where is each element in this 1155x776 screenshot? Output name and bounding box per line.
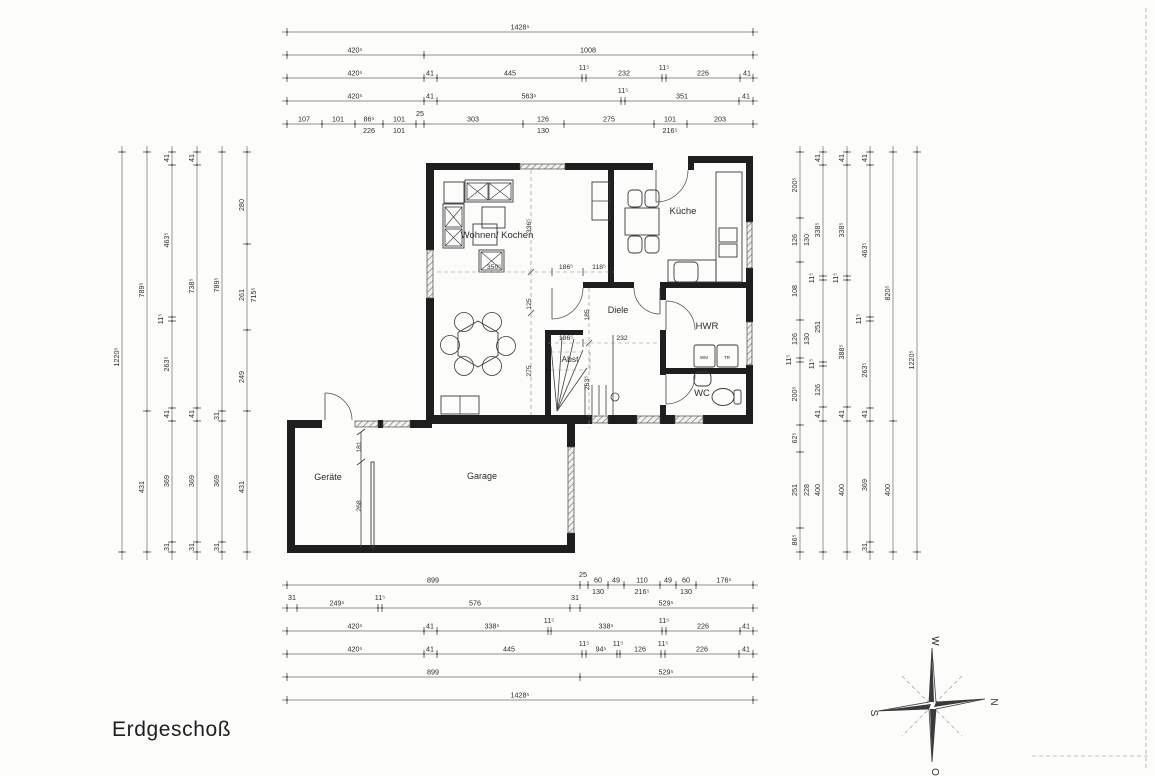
- dim-tick-dot: [377, 607, 379, 609]
- dim-label: 338⁵: [485, 622, 500, 631]
- dim-tick-dot: [892, 420, 894, 422]
- drawing-title: Erdgeschoß: [112, 718, 231, 742]
- dim-tick-dot: [846, 275, 848, 277]
- dim-label: 226: [697, 622, 709, 631]
- dim-label: 431: [137, 481, 146, 493]
- dim-tick-dot: [739, 77, 741, 79]
- door-swing: [666, 375, 695, 404]
- dim-label: 126: [634, 645, 646, 654]
- dim-tick-dot: [799, 151, 801, 153]
- dim-label: 369: [162, 475, 171, 487]
- dim-label: 226: [696, 645, 708, 654]
- dim-tick-dot: [752, 584, 754, 586]
- wall: [660, 415, 675, 424]
- dim-label: 11⁵: [659, 63, 669, 72]
- dim-label: 11⁵: [579, 63, 589, 72]
- inner-dim-label: 186⁵: [559, 335, 573, 342]
- dim-label: 420⁵: [348, 622, 363, 631]
- dim-tick-dot: [579, 676, 581, 678]
- dim-tick-dot: [738, 100, 740, 102]
- dim-tick-dot: [869, 316, 871, 318]
- dim-tick-dot: [752, 123, 754, 125]
- dim-label: 41: [162, 410, 171, 418]
- dim-tick-dot: [146, 551, 148, 553]
- dim-tick-dot: [286, 699, 288, 701]
- dim-tick-dot: [752, 630, 754, 632]
- dim-tick-dot: [665, 77, 667, 79]
- dim-tick-dot: [563, 123, 565, 125]
- dim-tick-dot: [146, 410, 148, 412]
- wc-cistern: [734, 390, 741, 404]
- dim-tick-dot: [846, 420, 848, 422]
- dim-tick-dot: [846, 151, 848, 153]
- dim-tick-dot: [822, 279, 824, 281]
- wall: [660, 330, 666, 375]
- dim-label: 899: [427, 668, 439, 677]
- wall: [567, 420, 575, 447]
- dim-tick-dot: [892, 551, 894, 553]
- dim-label: 1220⁵: [907, 351, 916, 370]
- inner-dim-label: 350⁵: [487, 264, 501, 271]
- dim-tick-dot: [579, 607, 581, 609]
- plan-line: [551, 346, 557, 411]
- dim-tick-dot: [436, 100, 438, 102]
- dim-label: 1428⁵: [511, 691, 530, 700]
- dim-sublabel: 226: [363, 126, 375, 135]
- dim-tick-dot: [869, 320, 871, 322]
- dim-label: 576: [469, 599, 481, 608]
- dim-tick-dot: [221, 151, 223, 153]
- wall: [567, 533, 575, 553]
- dim-label: 41: [162, 154, 171, 162]
- room-label-wohnen-kochen: Wohnen/ Kochen: [461, 230, 534, 241]
- wall: [426, 298, 434, 415]
- wall: [660, 405, 666, 415]
- wc-sink: [694, 372, 711, 386]
- wall: [426, 163, 434, 250]
- dim-label: 263⁵: [162, 357, 171, 372]
- inner-dim-label: 118⁵: [592, 264, 606, 271]
- dim-tick-dot: [587, 584, 589, 586]
- dim-tick-dot: [752, 676, 754, 678]
- dim-label: 463⁵: [860, 243, 869, 258]
- dim-label: 60: [682, 576, 690, 585]
- wall: [660, 288, 666, 300]
- dim-tick-dot: [869, 541, 871, 543]
- dim-label: 31: [288, 593, 296, 602]
- chair: [628, 236, 642, 253]
- dim-label: 11⁵: [807, 273, 816, 283]
- dim-label: 420⁵: [348, 92, 363, 101]
- dim-label: 41: [187, 154, 196, 162]
- dim-label: 126: [790, 333, 799, 345]
- dim-label: 338⁵: [599, 622, 614, 631]
- window: [592, 416, 608, 423]
- dim-label: 11⁵: [613, 639, 623, 648]
- dim-label: 11⁵: [784, 355, 793, 365]
- dim-label: 303: [467, 115, 479, 124]
- dim-tick-dot: [171, 420, 173, 422]
- window: [383, 421, 410, 427]
- dim-tick-dot: [799, 357, 801, 359]
- dim-tick-dot: [171, 151, 173, 153]
- dim-label: 41: [742, 622, 750, 631]
- dim-label: 11⁵: [831, 273, 840, 283]
- window: [747, 222, 752, 268]
- window: [427, 250, 433, 298]
- dim-label: 11⁵: [156, 314, 165, 324]
- dim-tick-dot: [846, 551, 848, 553]
- dim-tick-dot: [436, 630, 438, 632]
- dim-tick-dot: [752, 100, 754, 102]
- compass-south-label: S: [868, 710, 879, 717]
- dim-label: 31: [212, 543, 221, 551]
- door-swing: [552, 288, 583, 319]
- dim-tick-dot: [661, 630, 663, 632]
- dim-tick-dot: [171, 541, 173, 543]
- window: [520, 164, 565, 169]
- dim-label: 338⁵: [837, 223, 846, 238]
- inner-dim-label: 263⁵: [584, 376, 591, 390]
- dim-tick-dot: [547, 630, 549, 632]
- wall: [565, 163, 653, 170]
- dim-tick-dot: [286, 100, 288, 102]
- dim-label: 31: [162, 543, 171, 551]
- dim-tick-dot: [659, 584, 661, 586]
- dim-label: 11⁵: [579, 639, 589, 648]
- furniture: [716, 172, 742, 282]
- wall: [410, 420, 432, 428]
- dim-tick-dot: [752, 77, 754, 79]
- dim-label: 263⁵: [860, 363, 869, 378]
- furniture: [719, 244, 737, 257]
- dim-label: 420⁵: [348, 645, 363, 654]
- dim-label: 94⁵: [596, 645, 607, 654]
- toilet: [712, 389, 734, 406]
- dim-tick-dot: [286, 676, 288, 678]
- door-swing: [666, 301, 695, 330]
- dim-tick-dot: [321, 123, 323, 125]
- dim-tick-dot: [738, 653, 740, 655]
- dim-sublabel: 130: [802, 234, 811, 246]
- dim-tick-dot: [623, 584, 625, 586]
- dim-tick-dot: [436, 77, 438, 79]
- dim-tick-dot: [822, 406, 824, 408]
- dim-label: 251: [813, 321, 822, 333]
- dim-tick-dot: [171, 164, 173, 166]
- dim-tick-dot: [686, 123, 688, 125]
- wall: [378, 420, 383, 428]
- dim-tick-dot: [664, 653, 666, 655]
- chair: [628, 190, 642, 207]
- dim-tick-dot: [916, 551, 918, 553]
- room-label-wc: WC: [694, 388, 710, 399]
- dim-tick-dot: [423, 653, 425, 655]
- chair: [645, 236, 659, 253]
- dim-label: 232: [618, 69, 630, 78]
- dim-label: 11⁵: [659, 616, 669, 625]
- dim-label: 11⁵: [854, 314, 863, 324]
- compass-east-label: O: [929, 768, 940, 776]
- chair: [645, 190, 659, 207]
- dim-label: 820⁵: [883, 286, 892, 301]
- wall: [688, 156, 694, 170]
- dim-tick-dot: [171, 320, 173, 322]
- dim-tick-dot: [799, 424, 801, 426]
- dim-tick-dot: [423, 77, 425, 79]
- dim-label: 41: [837, 154, 846, 162]
- dim-sublabel: 130: [537, 126, 549, 135]
- wall: [432, 163, 520, 170]
- dim-label: 41: [813, 154, 822, 162]
- dim-tick-dot: [171, 316, 173, 318]
- dim-label: 351: [676, 92, 688, 101]
- dim-label: 400: [883, 484, 892, 496]
- dim-tick-dot: [695, 584, 697, 586]
- dim-label: 400: [837, 484, 846, 496]
- dim-label: 420⁵: [348, 46, 363, 55]
- dim-tick-dot: [246, 551, 248, 553]
- dim-tick-dot: [799, 527, 801, 529]
- dim-tick-dot: [660, 653, 662, 655]
- window: [355, 421, 378, 427]
- dim-label: 49: [612, 576, 620, 585]
- dim-label: 529⁵: [659, 668, 674, 677]
- room-label-geraete: Geräte: [314, 472, 342, 482]
- dim-tick-dot: [616, 653, 618, 655]
- room-label-diele: Diele: [608, 305, 629, 315]
- inner-dim-label: 125: [526, 298, 533, 310]
- dim-label: 41: [426, 92, 434, 101]
- dim-label: 251: [790, 484, 799, 496]
- dim-tick-dot: [121, 551, 123, 553]
- dim-sublabel: 216⁵: [635, 587, 650, 596]
- dim-label: 369: [212, 475, 221, 487]
- dim-tick-dot: [799, 217, 801, 219]
- dim-label: 86⁵: [364, 115, 375, 124]
- dim-label: 41: [426, 69, 434, 78]
- dim-label: 369: [860, 479, 869, 491]
- dim-label: 261: [237, 289, 246, 301]
- dim-label: 563⁵: [522, 92, 537, 101]
- dim-tick-dot: [246, 329, 248, 331]
- dim-label: 41: [742, 645, 750, 654]
- dim-label: 1428⁵: [511, 23, 530, 32]
- furniture: [719, 228, 737, 242]
- dim-tick-dot: [423, 54, 425, 56]
- dim-tick-dot: [296, 607, 298, 609]
- door-swing: [634, 288, 660, 314]
- dim-tick-dot: [196, 407, 198, 409]
- dim-label: 445: [504, 69, 516, 78]
- dim-label: 126: [813, 384, 822, 396]
- dim-tick-dot: [221, 410, 223, 412]
- dim-label: 107: [298, 115, 310, 124]
- dim-tick-dot: [799, 261, 801, 263]
- compass-west-label: W: [929, 636, 940, 646]
- dim-tick-dot: [286, 630, 288, 632]
- dim-label: 529⁵: [659, 599, 674, 608]
- dim-label: 25: [579, 570, 587, 579]
- dim-tick-dot: [423, 630, 425, 632]
- dim-label: 101: [393, 115, 405, 124]
- dim-tick-dot: [799, 451, 801, 453]
- dim-label: 249: [237, 371, 246, 383]
- dim-label: 369: [187, 475, 196, 487]
- inner-dim-label: 232: [616, 335, 628, 342]
- dim-tick-dot: [286, 77, 288, 79]
- dim-tick-dot: [146, 151, 148, 153]
- dim-tick-dot: [892, 151, 894, 153]
- dim-label: 126: [537, 115, 549, 124]
- wall: [746, 268, 753, 322]
- dim-tick-dot: [286, 607, 288, 609]
- dim-tick-dot: [822, 420, 824, 422]
- dim-label: 41: [860, 410, 869, 418]
- dim-label: 31: [212, 412, 221, 420]
- dining-table: [458, 321, 498, 367]
- dim-label: 41: [187, 410, 196, 418]
- wall: [660, 282, 753, 288]
- dim-tick-dot: [171, 551, 173, 553]
- room-label-garage: Garage: [467, 471, 497, 481]
- dim-label: 101: [332, 115, 344, 124]
- dim-label: 445: [503, 645, 515, 654]
- dim-label: 41: [860, 154, 869, 162]
- dining-chair: [441, 336, 460, 355]
- dim-label: 1008: [580, 46, 596, 55]
- dim-label: 280: [237, 199, 246, 211]
- dim-tick-dot: [221, 551, 223, 553]
- dim-tick-dot: [423, 100, 425, 102]
- dim-label: 11⁵: [658, 639, 668, 648]
- dim-tick-dot: [171, 407, 173, 409]
- dim-tick-dot: [246, 243, 248, 245]
- furniture: [444, 182, 464, 203]
- floor-plan-drawing: 1428⁵420⁵1008420⁵4144511⁵23211⁵22641420⁵…: [0, 0, 1155, 776]
- compass-north-label: N: [988, 698, 999, 705]
- dim-tick-dot: [286, 54, 288, 56]
- dim-tick-dot: [752, 31, 754, 33]
- dim-tick-dot: [846, 279, 848, 281]
- dim-tick-dot: [196, 164, 198, 166]
- dim-tick-dot: [799, 551, 801, 553]
- dim-label: 108: [790, 285, 799, 297]
- dim-tick-dot: [661, 77, 663, 79]
- dim-tick-dot: [739, 630, 741, 632]
- dim-tick-dot: [286, 31, 288, 33]
- wall: [608, 170, 614, 282]
- dim-tick-dot: [246, 410, 248, 412]
- dim-tick-dot: [581, 77, 583, 79]
- dim-tick-dot: [581, 653, 583, 655]
- dim-tick-dot: [653, 123, 655, 125]
- room-label-abst: Abst: [561, 354, 579, 364]
- dim-tick-dot: [675, 584, 677, 586]
- dim-tick-dot: [196, 420, 198, 422]
- wall: [583, 282, 634, 288]
- dim-tick-dot: [822, 164, 824, 166]
- dim-label: 249⁵: [330, 599, 345, 608]
- dim-label: 11⁵: [807, 359, 816, 369]
- dim-tick-dot: [522, 123, 524, 125]
- dim-label: 226: [697, 69, 709, 78]
- inner-dim-label: 185: [584, 309, 591, 321]
- dim-label: 41: [742, 92, 750, 101]
- dim-label: 126: [790, 234, 799, 246]
- dim-tick-dot: [354, 123, 356, 125]
- furniture: [625, 208, 659, 235]
- room-label-wm: WM: [700, 355, 708, 360]
- dim-tick-dot: [916, 151, 918, 153]
- dim-label: 86⁵: [790, 534, 799, 545]
- dim-tick-dot: [607, 584, 609, 586]
- dim-label: 275: [603, 115, 615, 124]
- furniture: [482, 207, 505, 228]
- room-label-kueche: Küche: [670, 206, 697, 217]
- plan-line: [557, 368, 587, 411]
- dim-tick-dot: [381, 607, 383, 609]
- dim-tick-dot: [196, 551, 198, 553]
- dim-label: 101: [664, 115, 676, 124]
- dim-sublabel: 130: [802, 333, 811, 345]
- dim-label: 463⁵: [162, 233, 171, 248]
- dim-tick-dot: [585, 77, 587, 79]
- dim-tick-dot: [196, 151, 198, 153]
- dim-tick-dot: [579, 584, 581, 586]
- dim-tick-dot: [846, 164, 848, 166]
- dim-label: 200⁵: [790, 387, 799, 402]
- dining-chair: [497, 337, 516, 356]
- dim-tick-dot: [799, 361, 801, 363]
- dim-label: 41: [813, 410, 822, 418]
- room-label-hwr: HWR: [696, 321, 719, 332]
- dim-tick-dot: [799, 319, 801, 321]
- dim-label: 431: [237, 481, 246, 493]
- dim-sublabel: 228: [802, 484, 811, 496]
- dim-label: 176⁵: [717, 576, 732, 585]
- dim-tick-dot: [382, 123, 384, 125]
- dim-tick-dot: [246, 151, 248, 153]
- dim-label: 1220⁵: [112, 348, 121, 367]
- dim-tick-dot: [436, 653, 438, 655]
- furniture: [371, 462, 374, 548]
- window: [675, 416, 703, 423]
- wall: [287, 420, 295, 553]
- door-swing: [325, 393, 352, 420]
- dim-tick-dot: [550, 630, 552, 632]
- dim-label: 11⁵: [375, 593, 385, 602]
- dim-label: 41: [743, 69, 751, 78]
- dim-tick-dot: [121, 151, 123, 153]
- dim-label: 11⁵: [618, 86, 628, 95]
- wall: [688, 156, 753, 163]
- dim-label: 60: [594, 576, 602, 585]
- inner-dim-label: 181: [356, 441, 363, 453]
- window: [637, 416, 660, 423]
- dim-label: 25: [416, 109, 424, 118]
- dim-label: 400: [813, 484, 822, 496]
- dim-tick-dot: [822, 275, 824, 277]
- dim-tick-dot: [822, 151, 824, 153]
- wall: [746, 156, 753, 222]
- door-swing: [656, 170, 688, 202]
- dim-label: 789⁵: [137, 283, 146, 298]
- dim-tick-dot: [619, 653, 621, 655]
- dim-label: 49: [664, 576, 672, 585]
- dim-tick-dot: [624, 100, 626, 102]
- stove: [674, 262, 698, 282]
